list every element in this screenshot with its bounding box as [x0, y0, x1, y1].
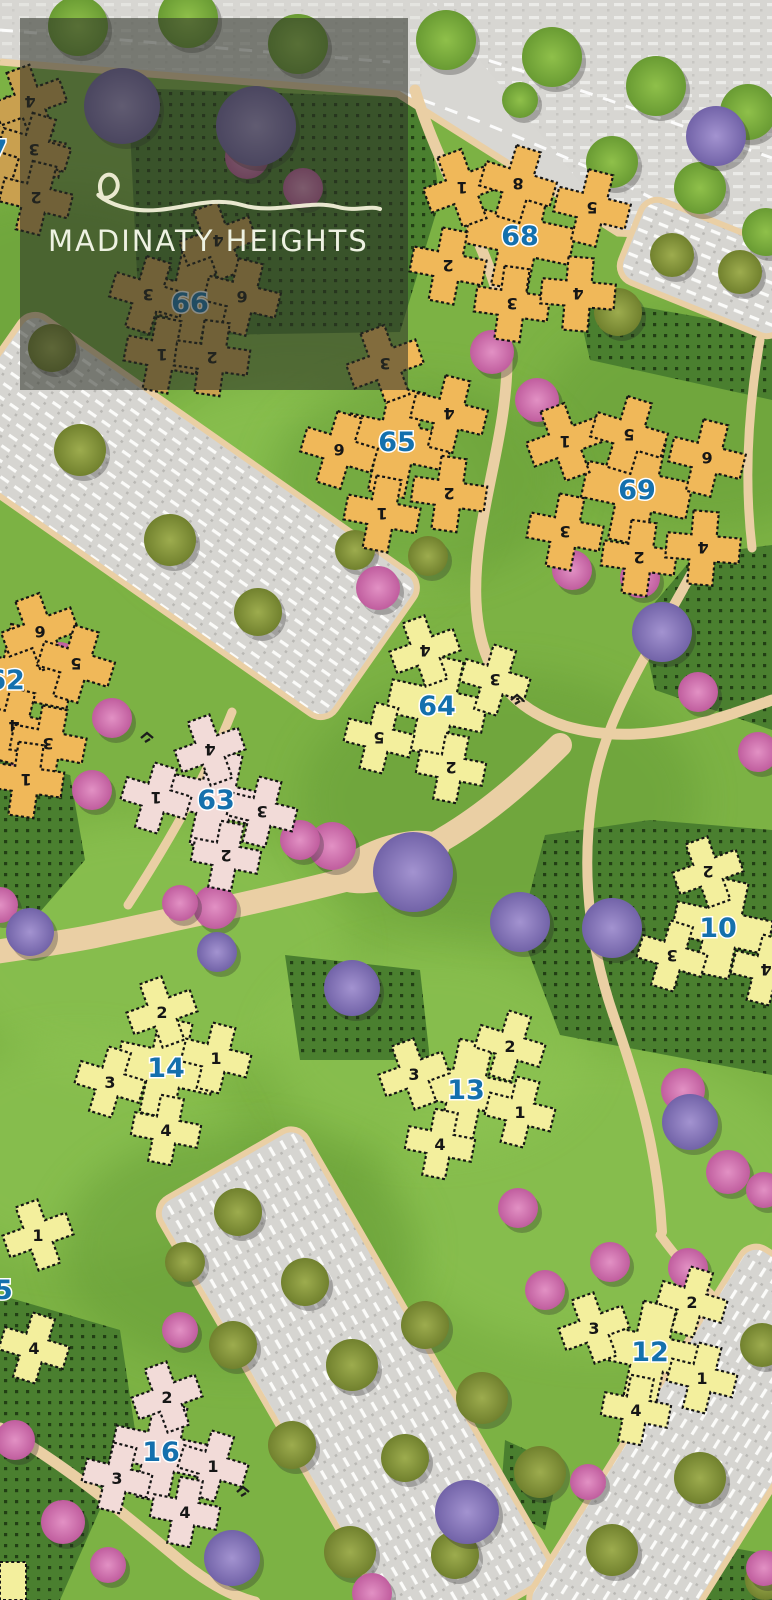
cluster-69-unit-4-number: 4: [697, 538, 708, 557]
cluster-62-unit-6-number: 6: [34, 622, 45, 641]
cluster-14-unit-4-number: 4: [160, 1121, 171, 1140]
cluster-65-unit-2-number: 2: [443, 484, 454, 503]
cluster-12-unit-2-number: 2: [686, 1293, 697, 1312]
cluster-12-unit-4-number: 4: [630, 1401, 641, 1420]
cluster-68-unit-4-number: 4: [572, 284, 583, 303]
cluster-65-label[interactable]: 65: [378, 427, 416, 458]
cluster-13-unit-3-number: 3: [408, 1065, 419, 1084]
cluster-16-unit-3-number: 3: [111, 1469, 122, 1488]
cluster-65-unit-4-number: 4: [443, 404, 454, 423]
cluster-69-unit-2-number: 2: [633, 548, 644, 567]
cluster-13-unit-4-number: 4: [434, 1135, 445, 1154]
cluster-12-unit-3-number: 3: [588, 1319, 599, 1338]
cluster-7-label[interactable]: 7: [0, 135, 7, 166]
cluster-16-label[interactable]: 16: [142, 1437, 180, 1468]
cluster-63-label[interactable]: 63: [197, 785, 235, 816]
cluster-69-unit-3-number: 3: [559, 522, 570, 541]
cluster-10-unit-3-number: 3: [666, 946, 677, 965]
building-fragment: [0, 1562, 26, 1600]
cluster-68-unit-5-number: 5: [586, 198, 597, 217]
cluster-16-unit-1-number: 1: [207, 1457, 218, 1476]
cluster-68-unit-2-number: 2: [442, 256, 453, 275]
cluster-10-unit-4-number: 4: [760, 960, 771, 979]
cluster-64-unit-4-number: 4: [419, 641, 430, 660]
cluster-69-unit-6-number: 6: [701, 448, 712, 467]
cluster-13-label[interactable]: 13: [447, 1075, 485, 1106]
cluster-64-unit-5-number: 5: [373, 728, 384, 747]
cluster-68-unit-3-number: 3: [506, 294, 517, 313]
cluster-10-unit-2-number: 2: [702, 862, 713, 881]
cluster-65-unit-6-number: 6: [333, 440, 344, 459]
cluster-13-unit-1-number: 1: [514, 1103, 525, 1122]
cluster-13-unit-2-number: 2: [504, 1037, 515, 1056]
site-map[interactable]: 4327436126618523468364126515632469654316…: [0, 0, 772, 1600]
cluster-68-unit-1-number: 1: [456, 178, 467, 197]
cluster-14-unit-3-number: 3: [104, 1073, 115, 1092]
cluster-15-label[interactable]: 15: [0, 1275, 13, 1306]
cluster-14-unit-1-number: 1: [210, 1049, 221, 1068]
cluster-65-unit-1-number: 1: [376, 504, 387, 523]
cluster-10-label[interactable]: 10: [699, 913, 737, 944]
cluster-69-unit-1-number: 1: [559, 432, 570, 451]
cluster-63-unit-1-number: 1: [150, 788, 161, 807]
logo-title: MADINATY HEIGHTS: [48, 224, 369, 258]
cluster-62-unit-3-number: 3: [42, 734, 53, 753]
cluster-16-unit-4-number: 4: [179, 1503, 190, 1522]
cluster-62-unit-5-number: 5: [70, 654, 81, 673]
cluster-69-label[interactable]: 69: [618, 475, 656, 506]
cluster-16-unit-2-number: 2: [161, 1388, 172, 1407]
cluster-69-unit-5-number: 5: [623, 425, 634, 444]
cluster-68-label[interactable]: 68: [501, 221, 539, 252]
cluster-64-unit-2-number: 2: [445, 758, 456, 777]
cluster-64-unit-3-number: 3: [489, 670, 500, 689]
cluster-68-unit-8-number: 8: [512, 174, 523, 193]
cluster-14-unit-2-number: 2: [156, 1003, 167, 1022]
cluster-63-unit-3-number: 3: [256, 802, 267, 821]
cluster-62-label[interactable]: 62: [0, 665, 25, 696]
logo-squiggle-icon: [20, 18, 408, 390]
cluster-63-unit-2-number: 2: [220, 846, 231, 865]
cluster-64-label[interactable]: 64: [418, 691, 456, 722]
cluster-14-label[interactable]: 14: [147, 1053, 185, 1084]
cluster-62-unit-1-number: 1: [20, 770, 31, 789]
cluster-12-unit-1-number: 1: [696, 1369, 707, 1388]
cluster-12-label[interactable]: 12: [631, 1337, 669, 1368]
cluster-15-unit-4-number: 4: [28, 1339, 39, 1358]
cluster-63-unit-4-number: 4: [204, 740, 215, 759]
cluster-15-unit-1-number: 1: [32, 1226, 43, 1245]
logo-overlay: MADINATY HEIGHTS: [20, 18, 408, 390]
